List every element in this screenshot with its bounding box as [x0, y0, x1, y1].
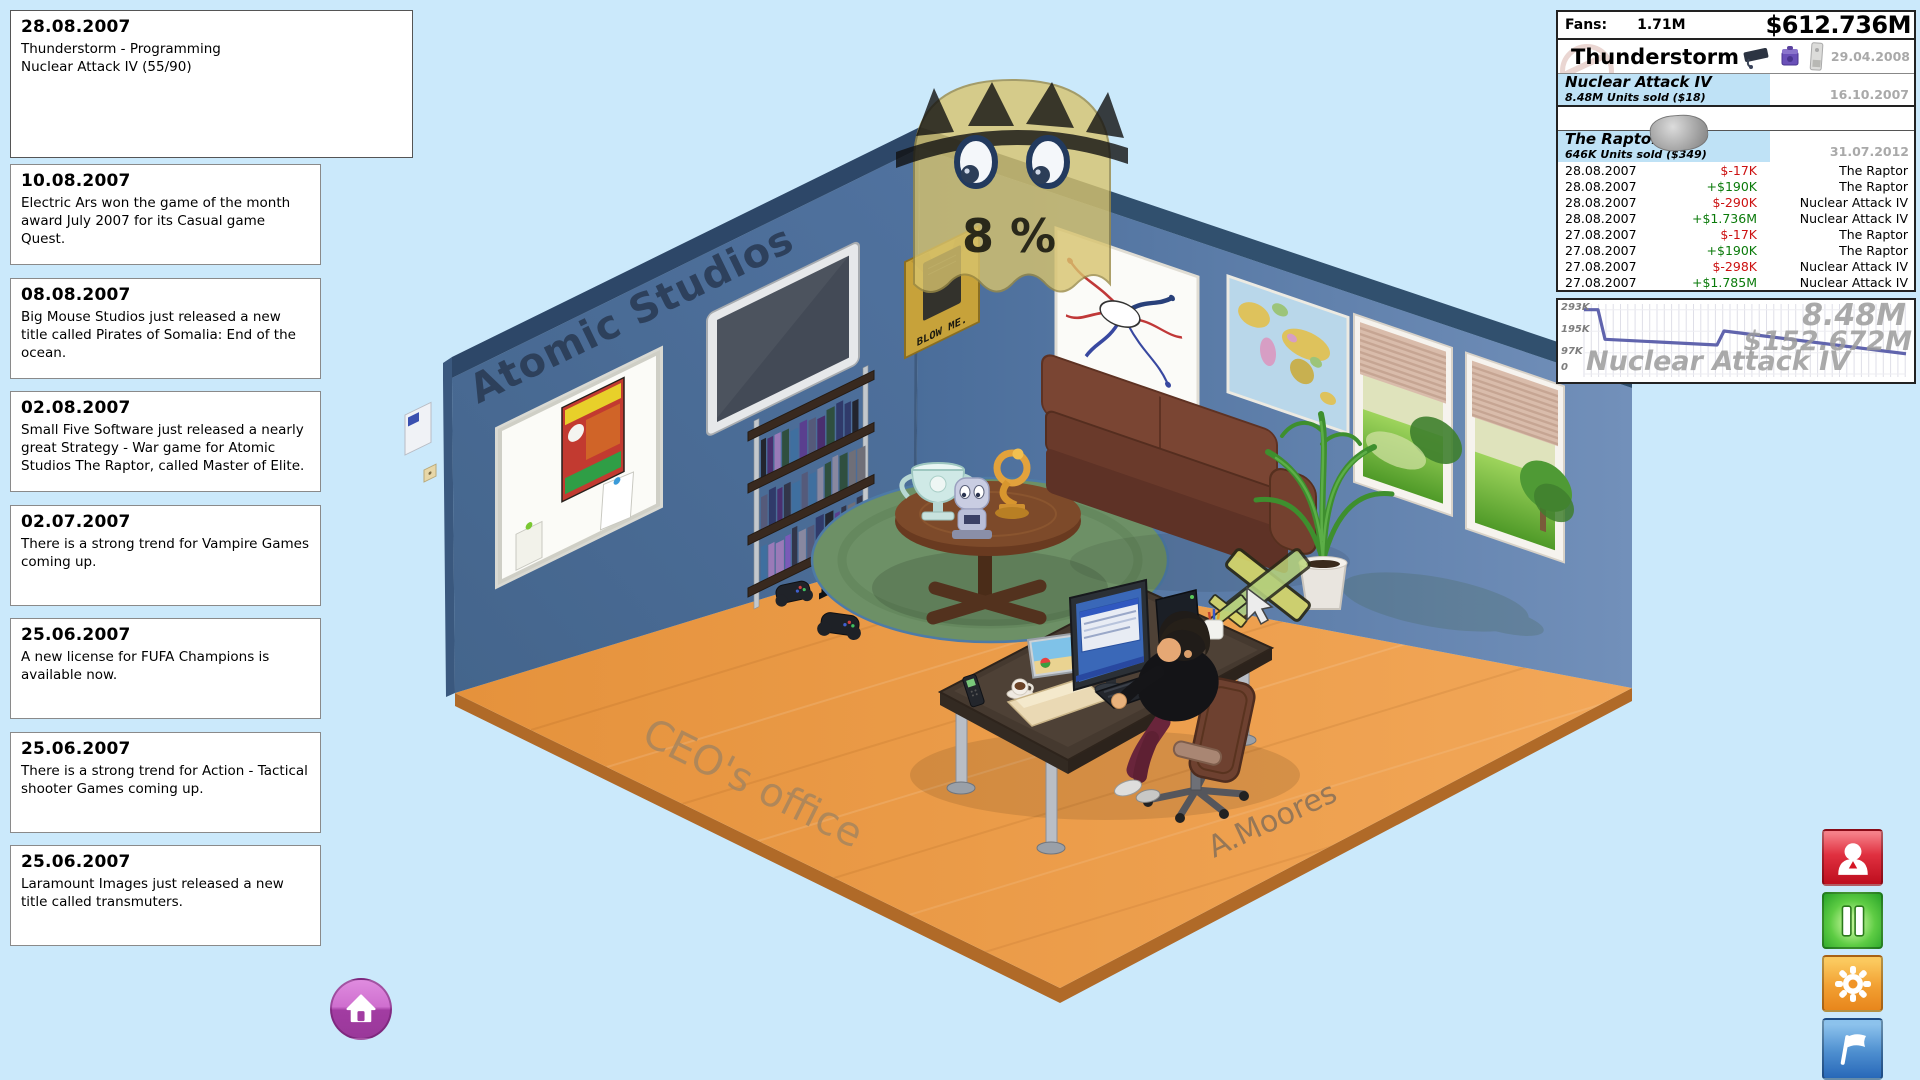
news-date: 02.07.2007: [21, 512, 310, 532]
empty-row: [1558, 107, 1914, 131]
transaction-date: 28.08.2007: [1558, 211, 1657, 226]
news-text: Big Mouse Studios just released a new ti…: [21, 308, 310, 362]
xbox-console-icon: [1808, 42, 1826, 72]
window-right: [1466, 353, 1574, 566]
gamecube-console-icon: [1779, 46, 1801, 68]
transaction-amount: $-17K: [1657, 163, 1757, 178]
transaction-date: 27.08.2007: [1558, 243, 1657, 258]
transaction-row: 27.08.2007 $-298K Nuclear Attack IV: [1558, 258, 1914, 274]
transaction-date: 27.08.2007: [1558, 275, 1657, 290]
person-icon: [1834, 839, 1872, 877]
transaction-row: 28.08.2007 +$1.736M Nuclear Attack IV: [1558, 210, 1914, 226]
transaction-game: Nuclear Attack IV: [1757, 211, 1914, 226]
transaction-row: 27.08.2007 $-17K The Raptor: [1558, 226, 1914, 242]
transaction-amount: $-298K: [1657, 259, 1757, 274]
transaction-amount: +$190K: [1657, 179, 1757, 194]
status-box: 28.08.2007 Thunderstorm - Programming Nu…: [10, 10, 413, 158]
transaction-date: 27.08.2007: [1558, 259, 1657, 274]
home-icon: [339, 987, 383, 1031]
game-name: Nuclear Attack IV: [1565, 75, 1770, 91]
news-date: 10.08.2007: [21, 171, 310, 191]
news-text: Laramount Images just released a new tit…: [21, 875, 310, 911]
transaction-game: Nuclear Attack IV: [1757, 275, 1914, 290]
status-line: Nuclear Attack IV (55/90): [21, 58, 402, 76]
pause-icon: [1834, 902, 1872, 940]
transaction-game: The Raptor: [1757, 227, 1914, 242]
fans-value: 1.71M: [1637, 17, 1685, 33]
game-highlight-cell: Nuclear Attack IV 8.48M Units sold ($18): [1558, 74, 1770, 105]
y-tick: 97K: [1561, 346, 1583, 357]
game-release-date: 31.07.2012: [1830, 144, 1909, 159]
news-item[interactable]: 02.07.2007 There is a strong trend for V…: [10, 505, 321, 606]
news-item[interactable]: 25.06.2007 There is a strong trend for A…: [10, 732, 321, 833]
transaction-amount: +$1.736M: [1657, 211, 1757, 226]
flag-icon: [1833, 1029, 1873, 1069]
news-item[interactable]: 10.08.2007 Electric Ars won the game of …: [10, 164, 321, 265]
status-date: 28.08.2007: [21, 17, 402, 37]
transaction-game: Nuclear Attack IV: [1757, 195, 1914, 210]
pause-button[interactable]: [1822, 892, 1883, 949]
game-units: 8.48M Units sold ($18): [1565, 91, 1770, 104]
sales-chart: 293K 195K 97K 0 8.48M $152.672M Nuclear …: [1556, 298, 1916, 384]
hype-ghost: 8 %: [896, 80, 1128, 292]
staff-button[interactable]: [1822, 829, 1883, 886]
news-item[interactable]: 08.08.2007 Big Mouse Studios just releas…: [10, 278, 321, 379]
news-text: Electric Ars won the game of the month a…: [21, 194, 310, 248]
wall-outlet: [424, 464, 436, 482]
transaction-row: 27.08.2007 +$1.785M Nuclear Attack IV: [1558, 274, 1914, 290]
wall-note: [405, 402, 431, 455]
news-item[interactable]: 25.06.2007 Laramount Images just release…: [10, 845, 321, 946]
transaction-game: The Raptor: [1757, 243, 1914, 258]
report-button[interactable]: [1822, 1018, 1883, 1080]
company-name: Thunderstorm: [1558, 45, 1739, 69]
y-tick: 195K: [1561, 324, 1590, 335]
transaction-row: 28.08.2007 +$190K The Raptor: [1558, 178, 1914, 194]
news-text: There is a strong trend for Action - Tac…: [21, 762, 310, 798]
transaction-row: 27.08.2007 +$190K The Raptor: [1558, 242, 1914, 258]
transaction-amount: $-290K: [1657, 195, 1757, 210]
transaction-amount: +$1.785M: [1657, 275, 1757, 290]
fans-label: Fans:: [1558, 17, 1607, 33]
playstation-console-icon: [1742, 45, 1772, 69]
news-date: 25.06.2007: [21, 625, 310, 645]
company-stats-panel: Fans: 1.71M $612.736M Thunderstorm: [1556, 10, 1916, 292]
cash-value: $612.736M: [1766, 11, 1914, 39]
transaction-game: The Raptor: [1757, 179, 1914, 194]
transaction-amount: +$190K: [1657, 243, 1757, 258]
gear-icon: [1833, 964, 1873, 1004]
settings-button[interactable]: [1822, 955, 1883, 1012]
news-date: 25.06.2007: [21, 852, 310, 872]
company-row: Thunderstorm 29.04.2008: [1558, 40, 1914, 74]
game-release-date: 16.10.2007: [1830, 87, 1909, 102]
home-button[interactable]: [330, 978, 392, 1040]
hype-percent-label: 8 %: [962, 209, 1056, 263]
transaction-game: The Raptor: [1757, 163, 1914, 178]
news-text: There is a strong trend for Vampire Game…: [21, 535, 310, 571]
game-dev-tycoon-screen: Atomic Studios: [0, 0, 1920, 1080]
window-left: [1354, 314, 1462, 519]
transaction-amount: $-17K: [1657, 227, 1757, 242]
company-release-date: 29.04.2008: [1831, 49, 1910, 64]
news-text: A new license for FUFA Champions is avai…: [21, 648, 310, 684]
news-item[interactable]: 25.06.2007 A new license for FUFA Champi…: [10, 618, 321, 719]
transaction-date: 27.08.2007: [1558, 227, 1657, 242]
news-text: Small Five Software just released a near…: [21, 421, 310, 475]
y-tick: 293K: [1561, 302, 1590, 313]
y-tick: 0: [1561, 362, 1568, 373]
transaction-date: 28.08.2007: [1558, 195, 1657, 210]
transaction-row: 28.08.2007 $-290K Nuclear Attack IV: [1558, 194, 1914, 210]
news-date: 02.08.2007: [21, 398, 310, 418]
chart-title-watermark: Nuclear Attack IV: [1586, 346, 1850, 377]
news-item[interactable]: 02.08.2007 Small Five Software just rele…: [10, 391, 321, 492]
game-row: Nuclear Attack IV 8.48M Units sold ($18)…: [1558, 74, 1914, 107]
platform-icons: [1742, 42, 1826, 72]
transaction-date: 28.08.2007: [1558, 179, 1657, 194]
news-date: 08.08.2007: [21, 285, 310, 305]
fans-row: Fans: 1.71M $612.736M: [1558, 12, 1914, 40]
game-row: The Raptor 646K Units sold ($349) 31.07.…: [1558, 131, 1914, 162]
transaction-date: 28.08.2007: [1558, 163, 1657, 178]
news-date: 25.06.2007: [21, 739, 310, 759]
status-line: Thunderstorm - Programming: [21, 40, 402, 58]
transaction-game: Nuclear Attack IV: [1757, 259, 1914, 274]
transaction-row: 28.08.2007 $-17K The Raptor: [1558, 162, 1914, 178]
